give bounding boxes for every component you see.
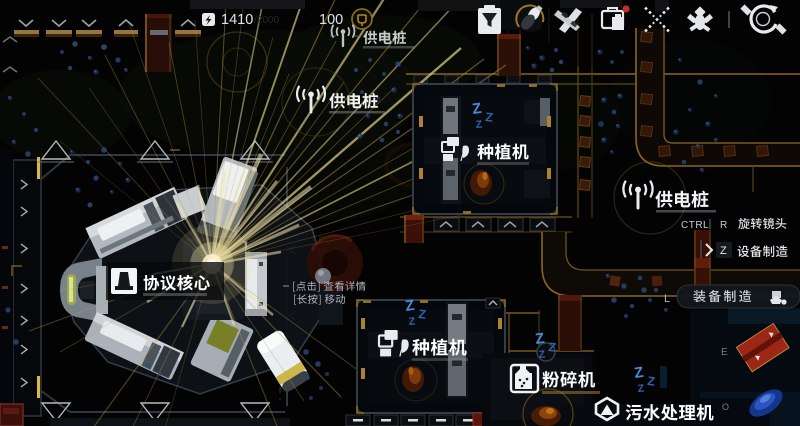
svg-text:100: 100 [319,12,343,28]
svg-text:CTRL: CTRL [681,220,709,231]
svg-text:Z: Z [720,245,727,257]
svg-text:1410: 1410 [221,12,253,28]
svg-text:R: R [720,220,727,231]
svg-text:E: E [721,347,728,358]
svg-text:/2000: /2000 [254,15,279,26]
svg-text:O: O [722,402,729,412]
svg-text:L: L [664,293,670,305]
